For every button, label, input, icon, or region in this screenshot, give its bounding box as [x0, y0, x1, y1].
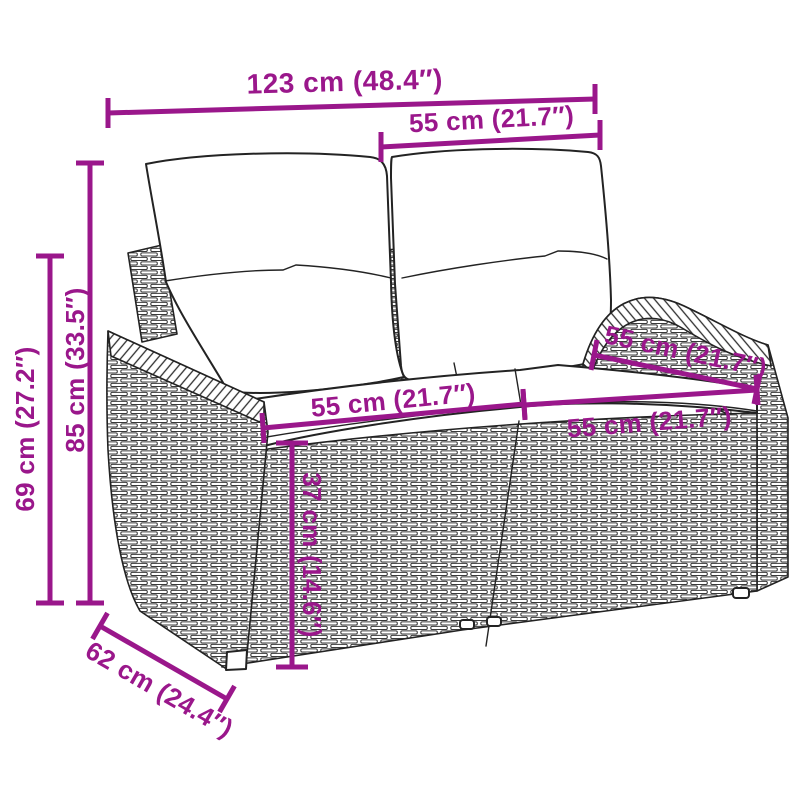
foot-left — [226, 650, 247, 670]
foot-right — [733, 588, 749, 598]
diagram-canvas: 123 cm (48.4″) 55 cm (21.7″) 85 cm (33.5… — [0, 0, 800, 800]
tick-mark — [523, 390, 525, 420]
tick-mark — [262, 413, 264, 443]
back-cushion-right — [391, 149, 611, 380]
dimension-armrest-height: 69 cm (27.2″) — [10, 256, 64, 603]
dimension-armrest-height-label: 69 cm (27.2″) — [10, 346, 40, 511]
product-dimension-diagram: 123 cm (48.4″) 55 cm (21.7″) 85 cm (33.5… — [0, 0, 800, 800]
foot-mid-left — [460, 620, 474, 629]
dimension-total-height: 85 cm (33.5″) — [60, 163, 104, 603]
dimension-seat-height-label: 37 cm (14.6″) — [297, 472, 327, 637]
dimension-total-height-label: 85 cm (33.5″) — [60, 287, 90, 452]
tick-mark — [756, 375, 758, 405]
dimension-overall-width-label: 123 cm (48.4″) — [246, 63, 443, 99]
foot-mid-right — [487, 617, 501, 626]
